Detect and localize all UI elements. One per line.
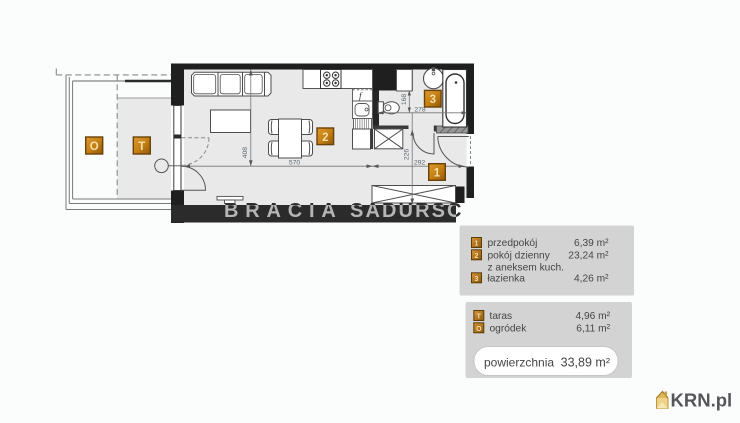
svg-text:KRN.pl: KRN.pl [671,390,733,411]
svg-text:ogródek: ogródek [490,323,528,334]
svg-text:6,11 m²: 6,11 m² [576,323,610,334]
svg-text:4,96 m²: 4,96 m² [575,311,610,322]
svg-text:przedpokój: przedpokój [488,238,538,249]
svg-text:O: O [476,326,482,333]
svg-text:226: 226 [403,149,410,161]
svg-text:33,89 m²: 33,89 m² [561,356,610,370]
svg-text:2: 2 [475,253,479,260]
svg-text:pokój dzienny: pokój dzienny [488,250,551,261]
svg-text:z aneksem kuch.: z aneksem kuch. [488,263,564,274]
svg-text:3: 3 [475,276,479,283]
svg-text:O: O [90,141,99,153]
svg-text:1: 1 [475,241,479,248]
svg-text:T: T [138,141,145,153]
svg-text:powierzchnia: powierzchnia [484,356,554,370]
svg-text:łazienka: łazienka [488,273,526,284]
svg-text:408: 408 [242,147,249,159]
svg-text:570: 570 [289,159,301,166]
svg-text:4,26 m²: 4,26 m² [574,273,609,284]
svg-text:2: 2 [322,132,328,144]
svg-text:23,24 m²: 23,24 m² [568,250,609,261]
svg-text:T: T [477,314,482,321]
svg-text:168: 168 [401,94,408,106]
svg-text:taras: taras [490,311,513,322]
svg-text:292: 292 [414,159,426,166]
svg-text:1: 1 [434,168,441,180]
svg-text:3: 3 [430,94,436,106]
svg-text:6,39 m²: 6,39 m² [574,238,609,249]
